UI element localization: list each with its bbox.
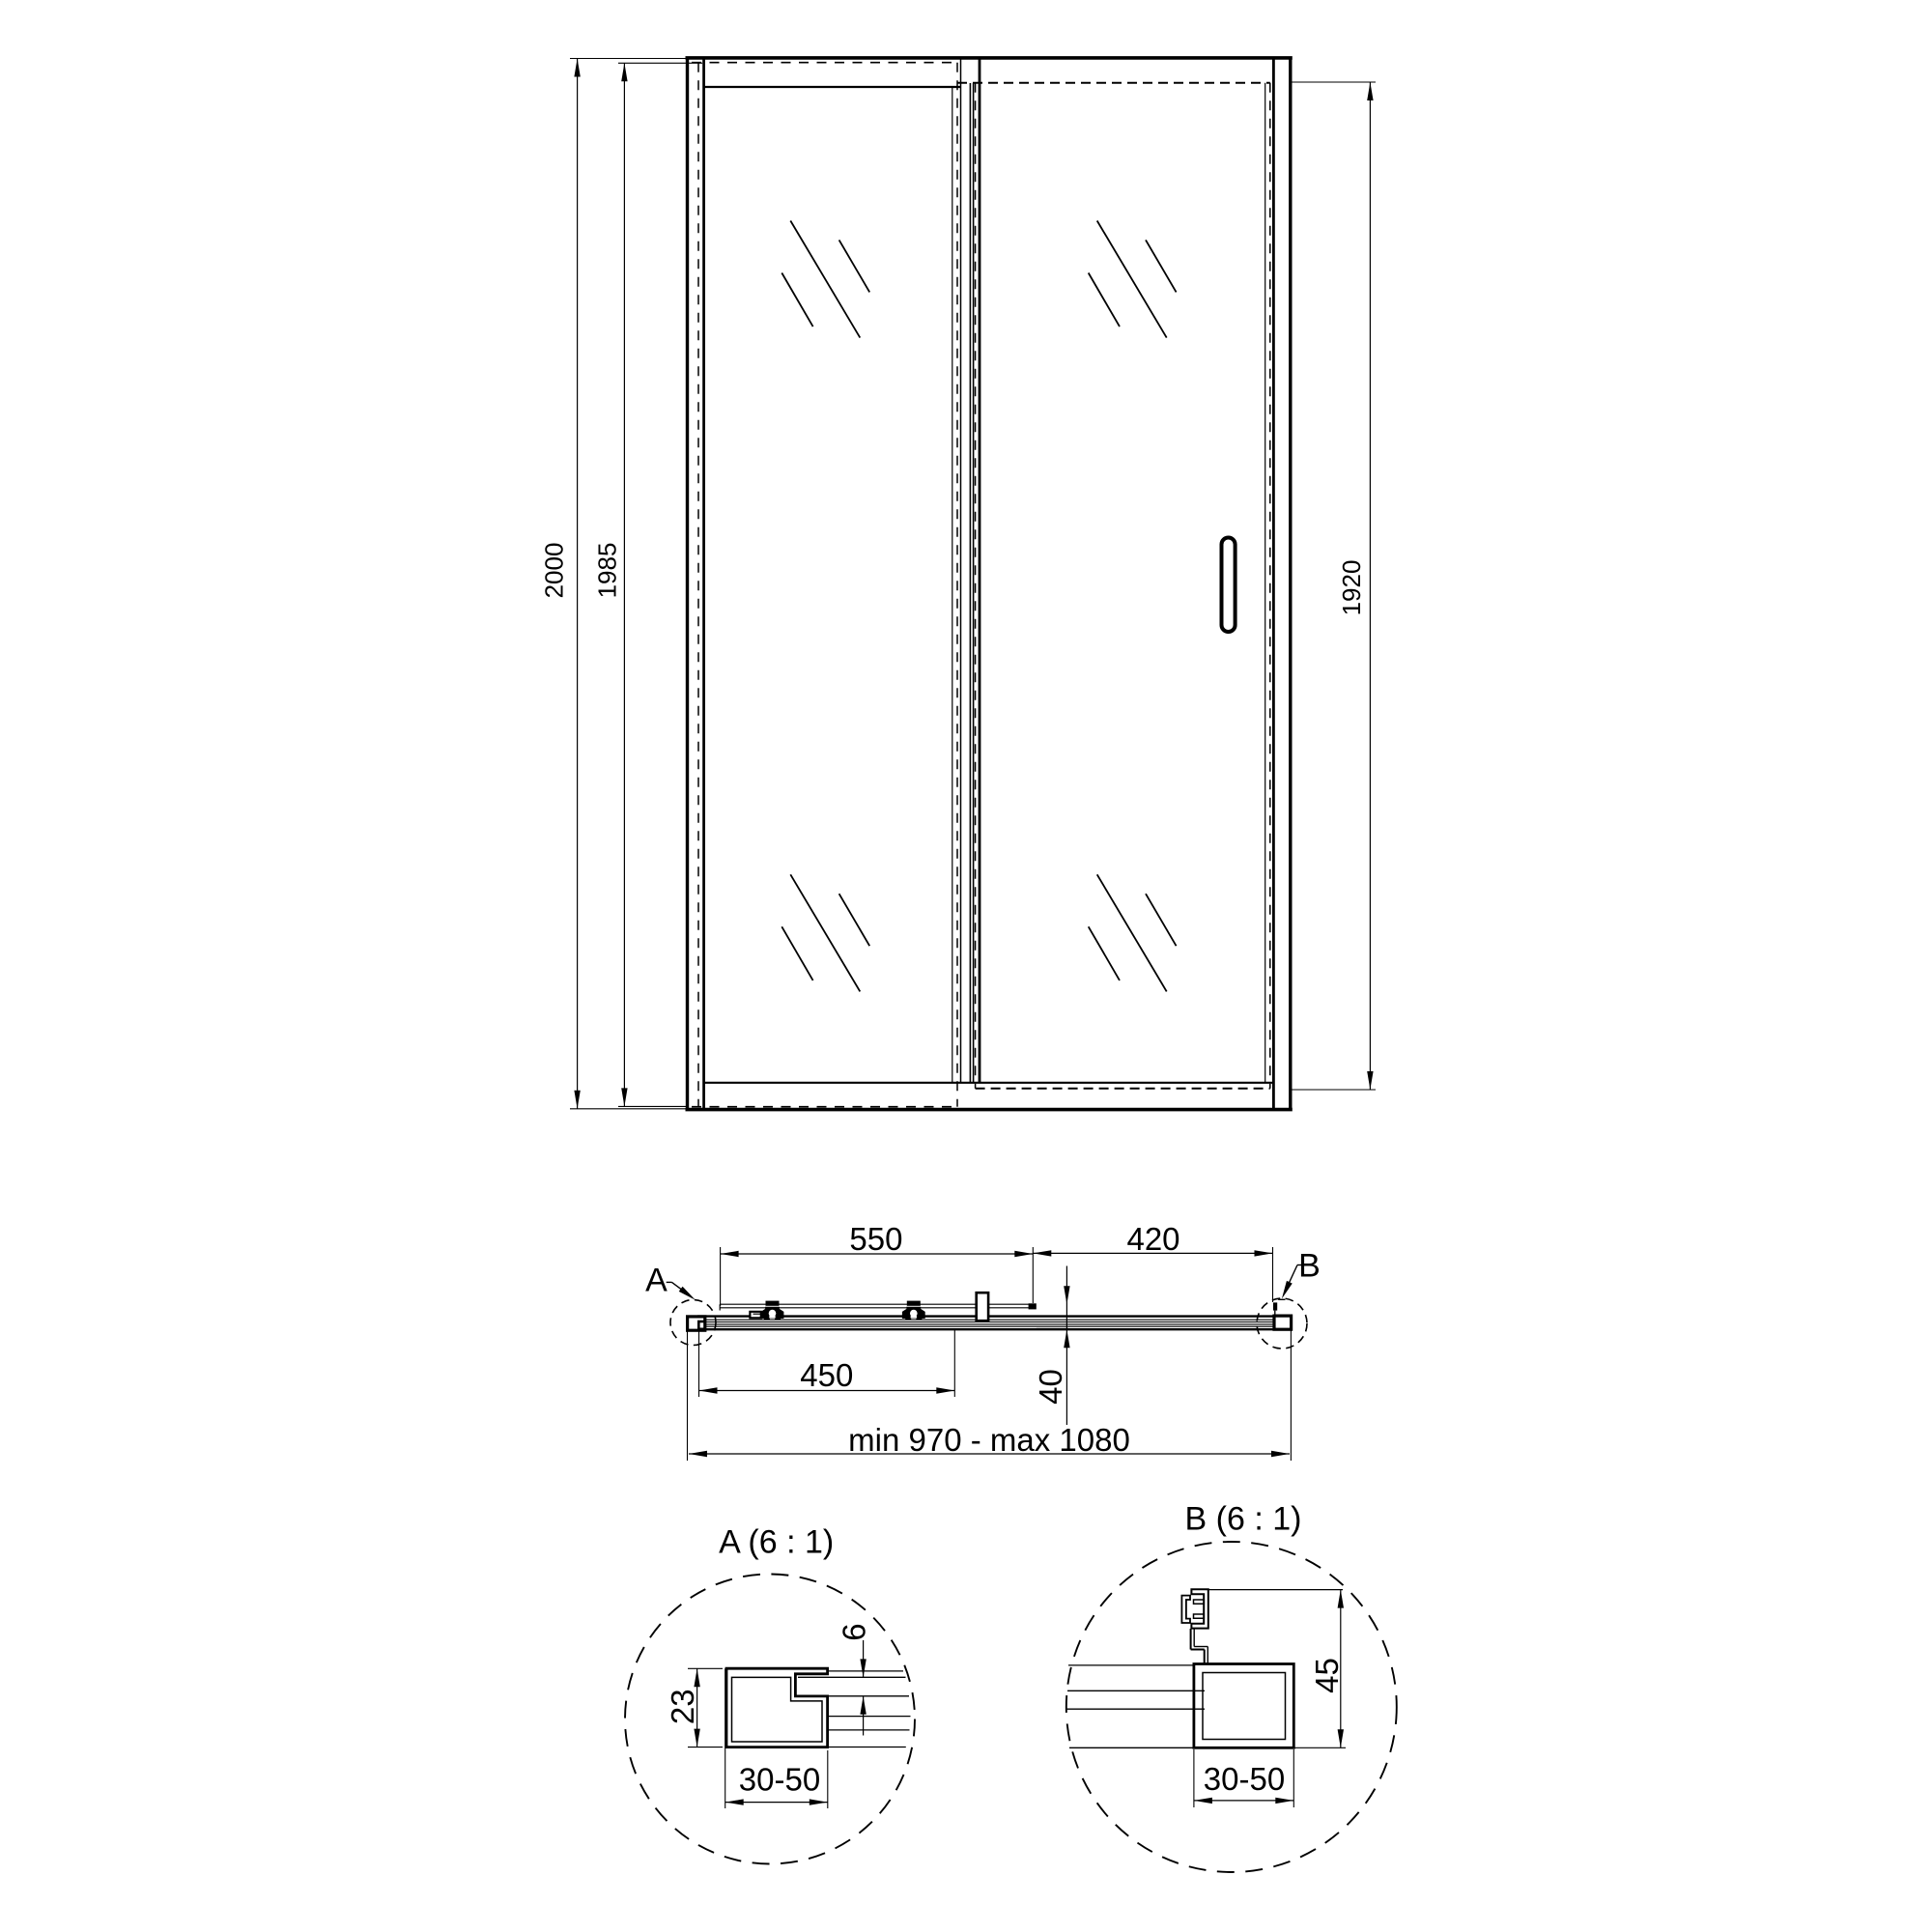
svg-text:1985: 1985 — [593, 543, 622, 599]
svg-text:min 970 - max 1080: min 970 - max 1080 — [848, 1422, 1130, 1458]
svg-text:40: 40 — [1033, 1369, 1068, 1405]
svg-text:45: 45 — [1309, 1658, 1345, 1693]
svg-text:B: B — [1298, 1248, 1321, 1285]
svg-text:30-50: 30-50 — [1204, 1761, 1285, 1797]
svg-text:A (6 : 1): A (6 : 1) — [719, 1524, 834, 1561]
svg-text:2000: 2000 — [540, 543, 569, 599]
svg-text:23: 23 — [665, 1689, 700, 1724]
svg-text:420: 420 — [1126, 1221, 1179, 1257]
svg-text:30-50: 30-50 — [739, 1761, 820, 1797]
svg-text:B (6 : 1): B (6 : 1) — [1185, 1501, 1302, 1538]
svg-text:1920: 1920 — [1337, 560, 1366, 616]
svg-text:A: A — [645, 1263, 668, 1299]
svg-text:550: 550 — [849, 1221, 902, 1257]
svg-text:450: 450 — [800, 1357, 853, 1393]
svg-text:6: 6 — [837, 1623, 872, 1640]
